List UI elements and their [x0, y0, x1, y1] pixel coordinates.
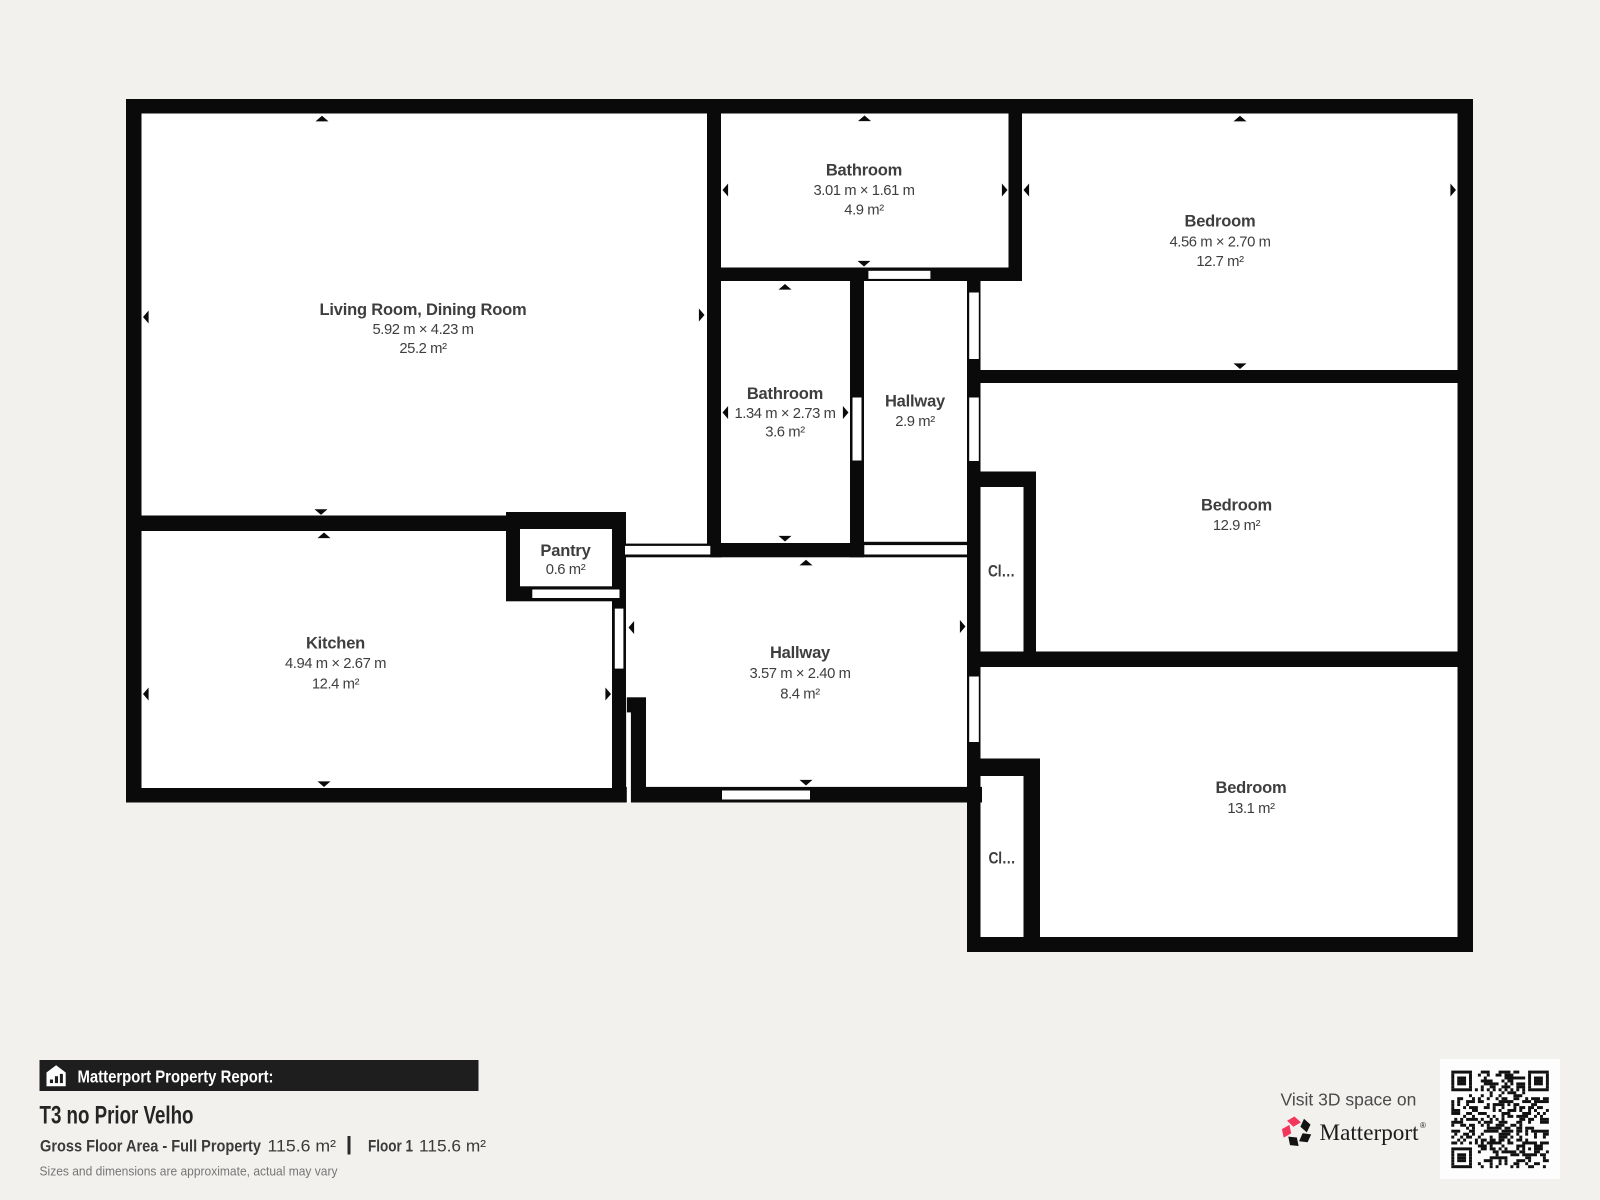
- svg-text:Hallway: Hallway: [885, 393, 946, 411]
- svg-text:12.9 m²: 12.9 m²: [1213, 518, 1261, 534]
- svg-text:0.6 m²: 0.6 m²: [546, 562, 586, 578]
- svg-text:4.94 m × 2.67 m: 4.94 m × 2.67 m: [285, 656, 386, 672]
- svg-text:Bedroom: Bedroom: [1201, 497, 1272, 515]
- svg-text:Matterport Property Report:: Matterport Property Report:: [78, 1066, 274, 1086]
- svg-text:12.7 m²: 12.7 m²: [1196, 254, 1244, 270]
- svg-text:Floor 1: Floor 1: [368, 1137, 413, 1156]
- svg-text:12.4 m²: 12.4 m²: [312, 677, 360, 693]
- svg-text:3.57 m × 2.40 m: 3.57 m × 2.40 m: [749, 666, 850, 682]
- svg-text:Kitchen: Kitchen: [306, 635, 365, 653]
- svg-text:Bedroom: Bedroom: [1215, 779, 1286, 797]
- svg-text:Sizes and dimensions are appro: Sizes and dimensions are approximate, ac…: [40, 1165, 339, 1179]
- svg-text:4.56 m × 2.70 m: 4.56 m × 2.70 m: [1169, 235, 1270, 251]
- svg-text:3.6 m²: 3.6 m²: [765, 425, 805, 441]
- svg-text:Cl…: Cl…: [988, 562, 1015, 580]
- svg-text:Cl…: Cl…: [989, 850, 1016, 868]
- svg-text:®: ®: [1420, 1121, 1426, 1130]
- svg-text:Pantry: Pantry: [540, 542, 591, 560]
- svg-text:Hallway: Hallway: [770, 644, 831, 662]
- svg-text:8.4 m²: 8.4 m²: [780, 687, 820, 703]
- svg-text:4.9 m²: 4.9 m²: [844, 203, 884, 219]
- svg-text:3.01 m × 1.61 m: 3.01 m × 1.61 m: [813, 183, 914, 199]
- svg-text:Bathroom: Bathroom: [826, 162, 902, 180]
- svg-text:25.2 m²: 25.2 m²: [399, 341, 447, 357]
- svg-text:Bathroom: Bathroom: [747, 385, 823, 403]
- svg-text:Visit 3D space on: Visit 3D space on: [1281, 1090, 1417, 1110]
- svg-text:Living Room, Dining Room: Living Room, Dining Room: [320, 301, 527, 319]
- svg-text:1.34 m × 2.73 m: 1.34 m × 2.73 m: [734, 406, 835, 422]
- svg-text:Gross Floor Area - Full Proper: Gross Floor Area - Full Property: [40, 1137, 261, 1156]
- svg-text:115.6 m²: 115.6 m²: [268, 1137, 337, 1156]
- svg-text:Matterport: Matterport: [1320, 1120, 1420, 1145]
- svg-text:T3 no Prior Velho: T3 no Prior Velho: [40, 1102, 194, 1130]
- svg-text:13.1 m²: 13.1 m²: [1227, 801, 1275, 817]
- svg-text:2.9 m²: 2.9 m²: [895, 414, 935, 430]
- svg-text:115.6 m²: 115.6 m²: [419, 1137, 486, 1156]
- svg-text:5.92 m × 4.23 m: 5.92 m × 4.23 m: [372, 322, 473, 338]
- svg-text:Bedroom: Bedroom: [1184, 213, 1255, 231]
